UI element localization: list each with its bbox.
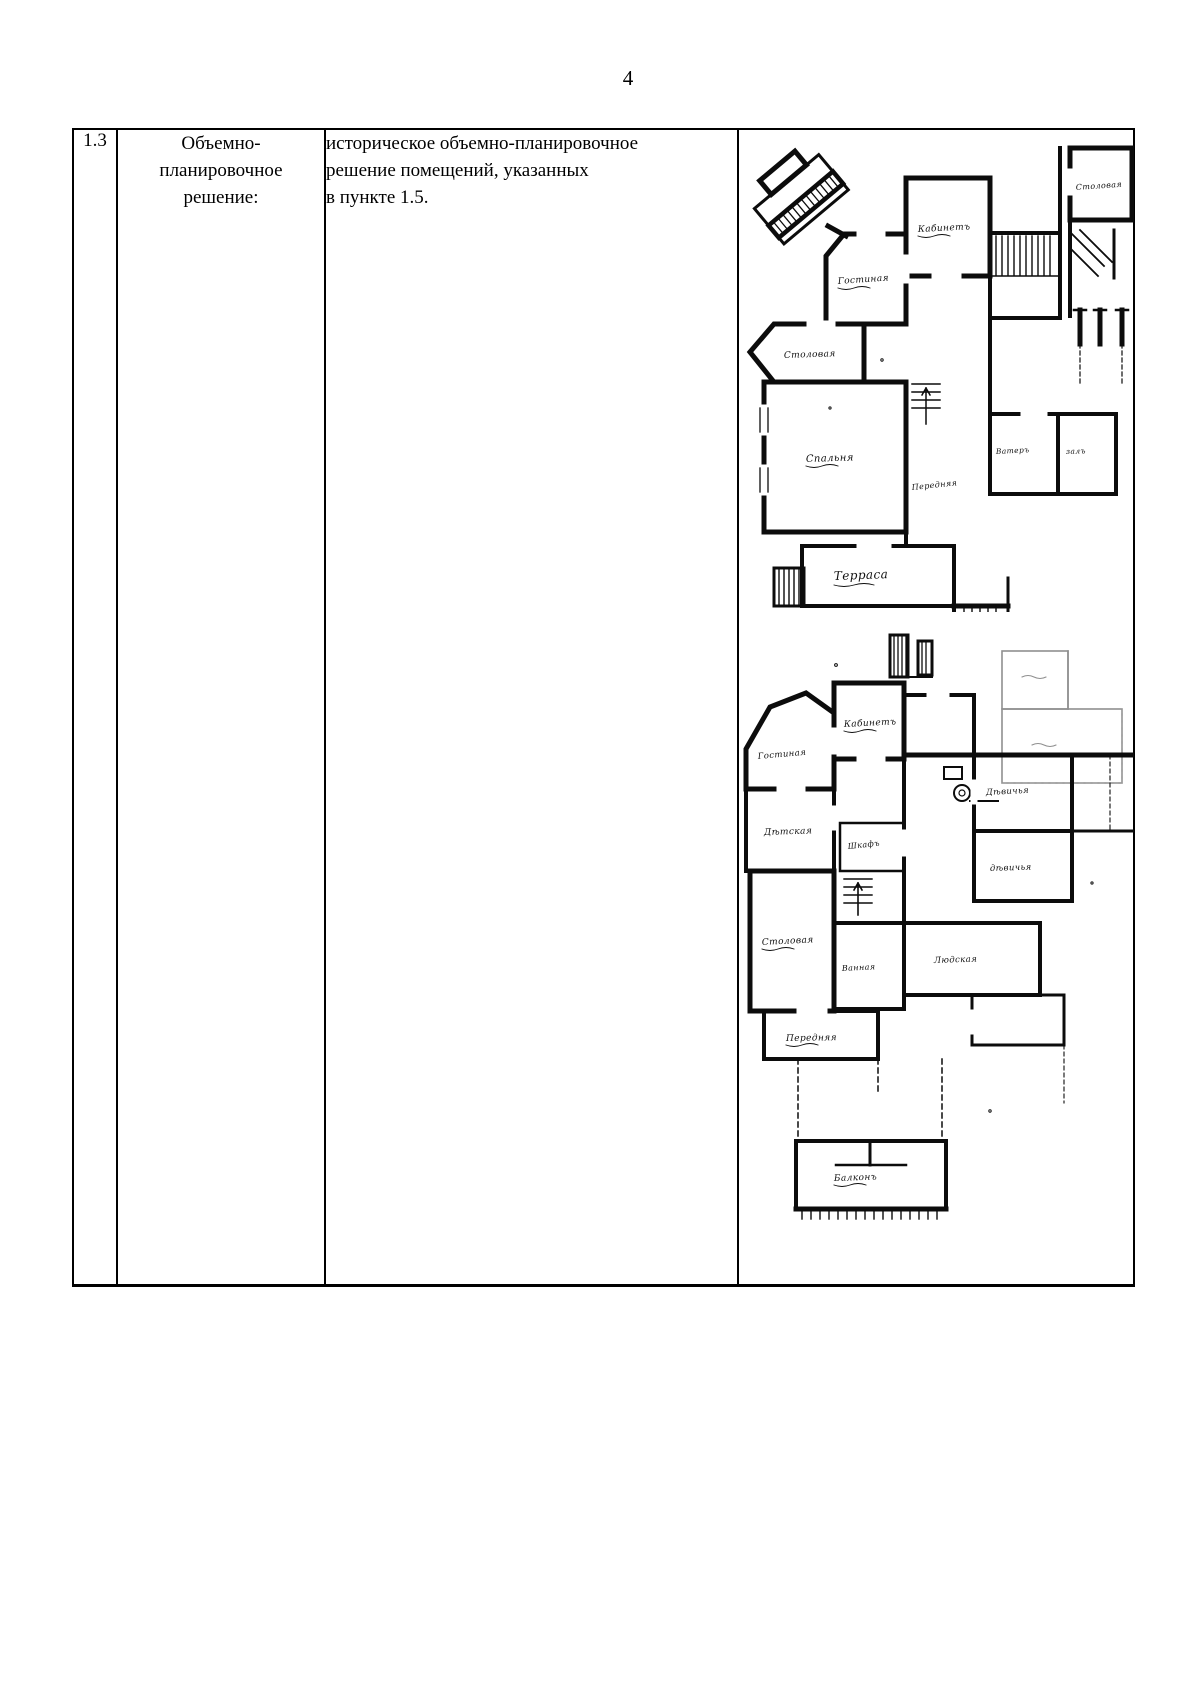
room-label: Дѣвичья (985, 786, 1030, 798)
room-label: Кабинетъ (917, 221, 971, 235)
room-label: Шкафъ (846, 839, 880, 851)
room-label: Столовая (762, 935, 814, 948)
room-label: дѣвичья (990, 863, 1032, 874)
room-label: Передняя (785, 1033, 837, 1044)
room-label: Кабинетъ (843, 716, 897, 730)
room-label: Терраса (834, 567, 889, 583)
room-label: Людская (933, 954, 978, 966)
top-stair-tails (890, 635, 932, 677)
table-row: 1.3 Объемно- планировочное решение: исто… (73, 129, 1134, 1285)
row-number-cell: 1.3 (73, 129, 117, 1285)
row-number: 1.3 (74, 130, 116, 152)
room-label: Ватеръ (995, 445, 1030, 456)
corridor-stair (844, 879, 872, 915)
room-label: Столовая (1076, 180, 1123, 192)
door-gaps (780, 695, 974, 1031)
parameter-cell: Объемно- планировочное решение: (117, 129, 325, 1285)
room-label: Балконъ (833, 1172, 878, 1184)
page-number: 4 (623, 66, 634, 91)
colonnade (1074, 310, 1128, 384)
plans-cell: Столовая Кабинетъ Гостиная Столовая Спал… (738, 129, 1134, 1285)
value-line: решение помещений, указанных (326, 157, 737, 184)
room-label: Спальня (806, 452, 854, 465)
content-table: 1.3 Объемно- планировочное решение: исто… (72, 128, 1135, 1287)
value-line: в пункте 1.5. (326, 184, 737, 211)
faded-rooms (1002, 651, 1122, 783)
room-label: Дѣтская (763, 826, 813, 838)
diagonal-stair (1072, 230, 1112, 276)
inner-walls (746, 695, 1072, 1209)
value-cell: историческое объемно-планировочное решен… (325, 129, 738, 1285)
small-stair (912, 384, 940, 424)
room-label: Гостиная (837, 273, 890, 287)
parameter-line: решение: (118, 184, 324, 211)
light-walls (836, 755, 1134, 1165)
room-label: Столовая (784, 349, 836, 361)
room-label: залъ (1066, 446, 1086, 456)
room-label: Ванная (841, 962, 876, 973)
document-page: 4 1.3 Объемно- планировочное решение: ис… (0, 0, 1200, 1697)
dashed-connectors (798, 755, 1110, 1141)
floor-plan-2: Кабинетъ Гостиная Дѣтская Шкафъ Дѣвичья … (740, 633, 1134, 1229)
main-walls (746, 683, 1134, 1209)
room-label: Гостиная (756, 748, 806, 762)
parameter-line: планировочное (118, 157, 324, 184)
parameter-line: Объемно- (118, 130, 324, 157)
balcony-hatch (802, 1211, 937, 1219)
staircase-hatch (990, 236, 1060, 276)
value-line: историческое объемно-планировочное (326, 130, 737, 157)
floor-plan-1: Столовая Кабинетъ Гостиная Столовая Спал… (740, 138, 1134, 612)
room-label: Передняя (910, 478, 957, 492)
label-flourishes (762, 730, 876, 1187)
